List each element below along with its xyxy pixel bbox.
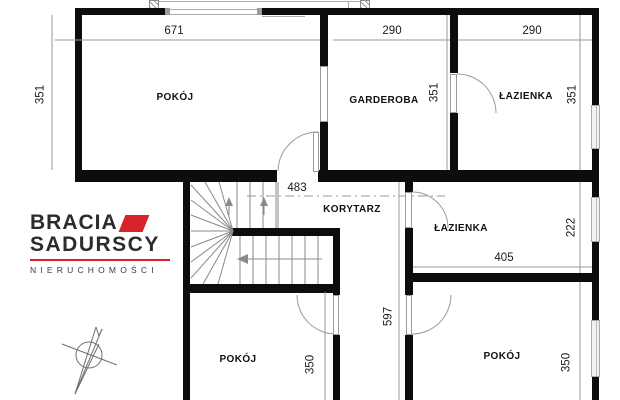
brand-flag-icon [118,215,149,232]
brand-tagline: NIERUCHOMOŚCI [30,265,180,275]
staircase [191,182,322,284]
room-label-lazienka-mid: ŁAZIENKA [416,223,506,235]
brand-divider [30,259,170,261]
brand-line1: BRACIA [30,212,118,234]
room-label-korytarz: KORYTARZ [307,204,397,216]
dim-597: 597 [383,295,396,339]
floor-plan: POKÓJ GARDEROBA ŁAZIENKA KORYTARZ ŁAZIEN… [0,0,620,400]
dim-290-b: 290 [510,25,554,38]
dim-222: 222 [566,206,579,250]
north-arrow-icon [62,327,117,394]
room-label-pokoj-top-left: POKÓJ [130,92,220,104]
room-label-lazienka-top: ŁAZIENKA [481,91,571,103]
room-label-pokoj-bottom-left: POKÓJ [193,354,283,366]
brand-logo: BRACIA SADURSCY NIERUCHOMOŚCI [30,212,180,275]
dim-483: 483 [275,182,319,195]
dim-671: 671 [152,25,196,38]
dim-350-a: 350 [305,343,318,387]
dim-351-b: 351 [429,71,442,115]
dim-405: 405 [482,252,526,265]
room-label-garderoba: GARDEROBA [339,95,429,107]
room-label-pokoj-bottom-right: POKÓJ [457,351,547,363]
dim-350-b: 350 [561,341,574,385]
dim-351-a: 351 [35,73,48,117]
brand-line2: SADURSCY [30,234,180,256]
dim-290-a: 290 [370,25,414,38]
plan-linework [0,0,620,400]
dim-351-c: 351 [567,73,580,117]
